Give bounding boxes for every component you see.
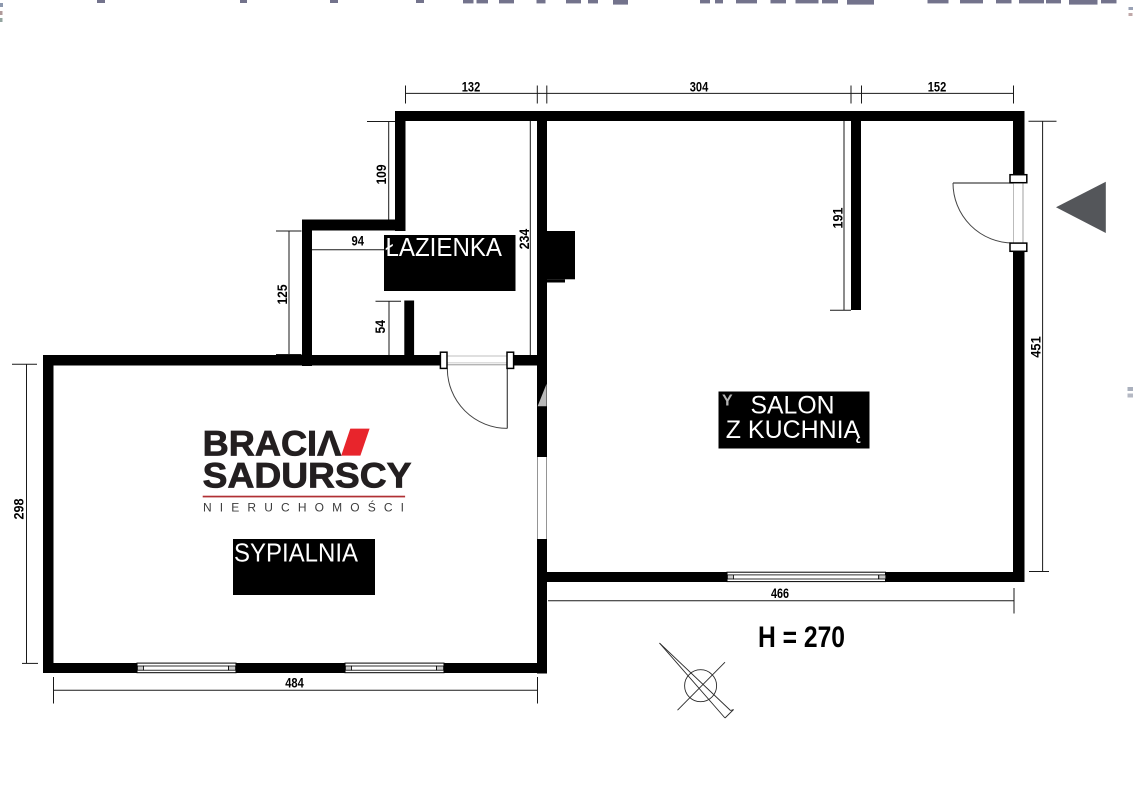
svg-text:298: 298: [10, 498, 26, 519]
svg-text:Z KUCHNIĄ: Z KUCHNIĄ: [726, 416, 861, 444]
svg-text:234: 234: [516, 229, 532, 250]
svg-text:125: 125: [274, 284, 290, 304]
svg-text:152: 152: [928, 79, 947, 95]
svg-text:SADURSCY: SADURSCY: [203, 456, 412, 495]
svg-text:304: 304: [690, 79, 709, 95]
svg-text:NIERUCHOMOŚCI: NIERUCHOMOŚCI: [203, 500, 404, 515]
svg-text:54: 54: [372, 320, 388, 334]
svg-text:451: 451: [1028, 336, 1044, 358]
svg-text:ŁAZIENKA: ŁAZIENKA: [386, 232, 503, 262]
svg-text:94: 94: [352, 233, 365, 249]
svg-text:191: 191: [829, 207, 845, 228]
svg-text:484: 484: [285, 675, 304, 691]
svg-text:132: 132: [462, 79, 481, 95]
svg-text:466: 466: [771, 585, 789, 601]
svg-text:SYPIALNIA: SYPIALNIA: [234, 538, 359, 568]
svg-text:H = 270: H = 270: [758, 621, 845, 654]
svg-text:109: 109: [373, 164, 389, 184]
svg-text:Y: Y: [722, 392, 733, 409]
